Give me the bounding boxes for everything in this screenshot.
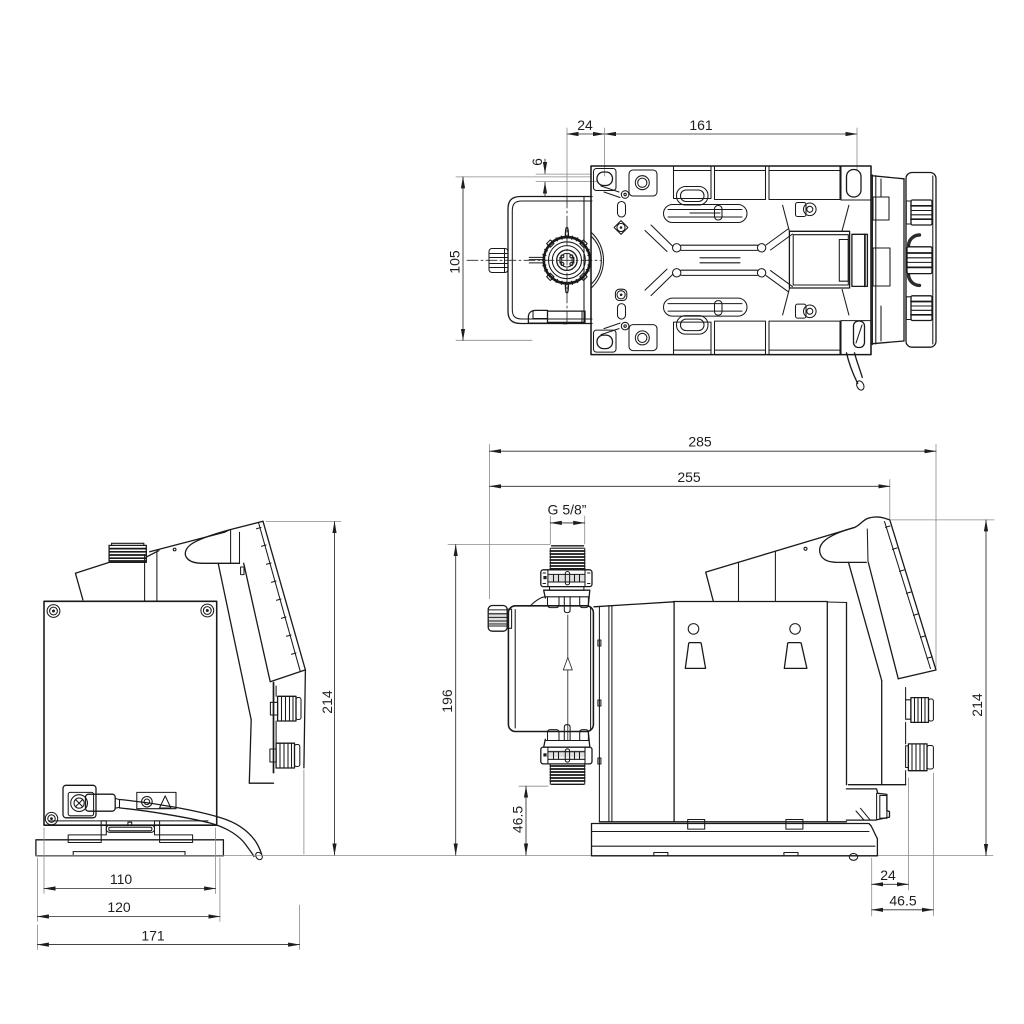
svg-text:G 5/8”: G 5/8” [548,502,587,518]
svg-text:46.5: 46.5 [510,806,526,833]
svg-text:46.5: 46.5 [889,892,916,908]
svg-text:105: 105 [447,250,463,274]
svg-text:196: 196 [439,689,455,713]
svg-text:214: 214 [969,693,985,717]
svg-text:120: 120 [107,899,131,915]
svg-text:171: 171 [141,928,165,944]
svg-text:24: 24 [880,867,896,883]
svg-text:285: 285 [688,434,712,450]
svg-text:255: 255 [677,469,701,485]
svg-text:6: 6 [529,158,545,166]
svg-text:214: 214 [319,690,335,714]
svg-text:161: 161 [689,117,713,133]
svg-text:24: 24 [577,117,593,133]
svg-text:110: 110 [110,871,133,887]
